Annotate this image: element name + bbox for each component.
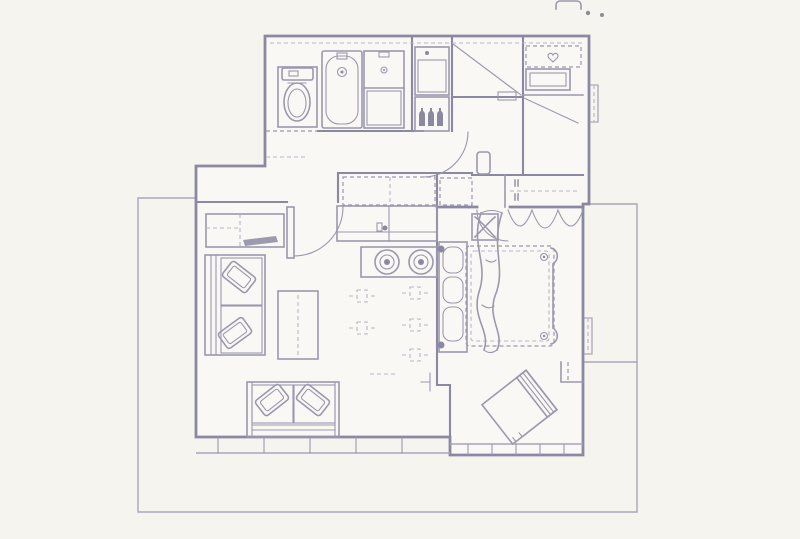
tab-fragment [556,1,581,9]
window-bedroom-right [584,318,592,354]
bottle-icons [419,108,443,126]
top-edge-artifacts [556,1,604,17]
artifact-dot [600,13,604,17]
apartment-floor [196,36,589,455]
floor-plan [0,0,800,539]
window-right-top [590,85,598,122]
window-ticks-living [218,437,402,453]
balcony-right [583,204,637,362]
artifact-dot [586,11,590,15]
